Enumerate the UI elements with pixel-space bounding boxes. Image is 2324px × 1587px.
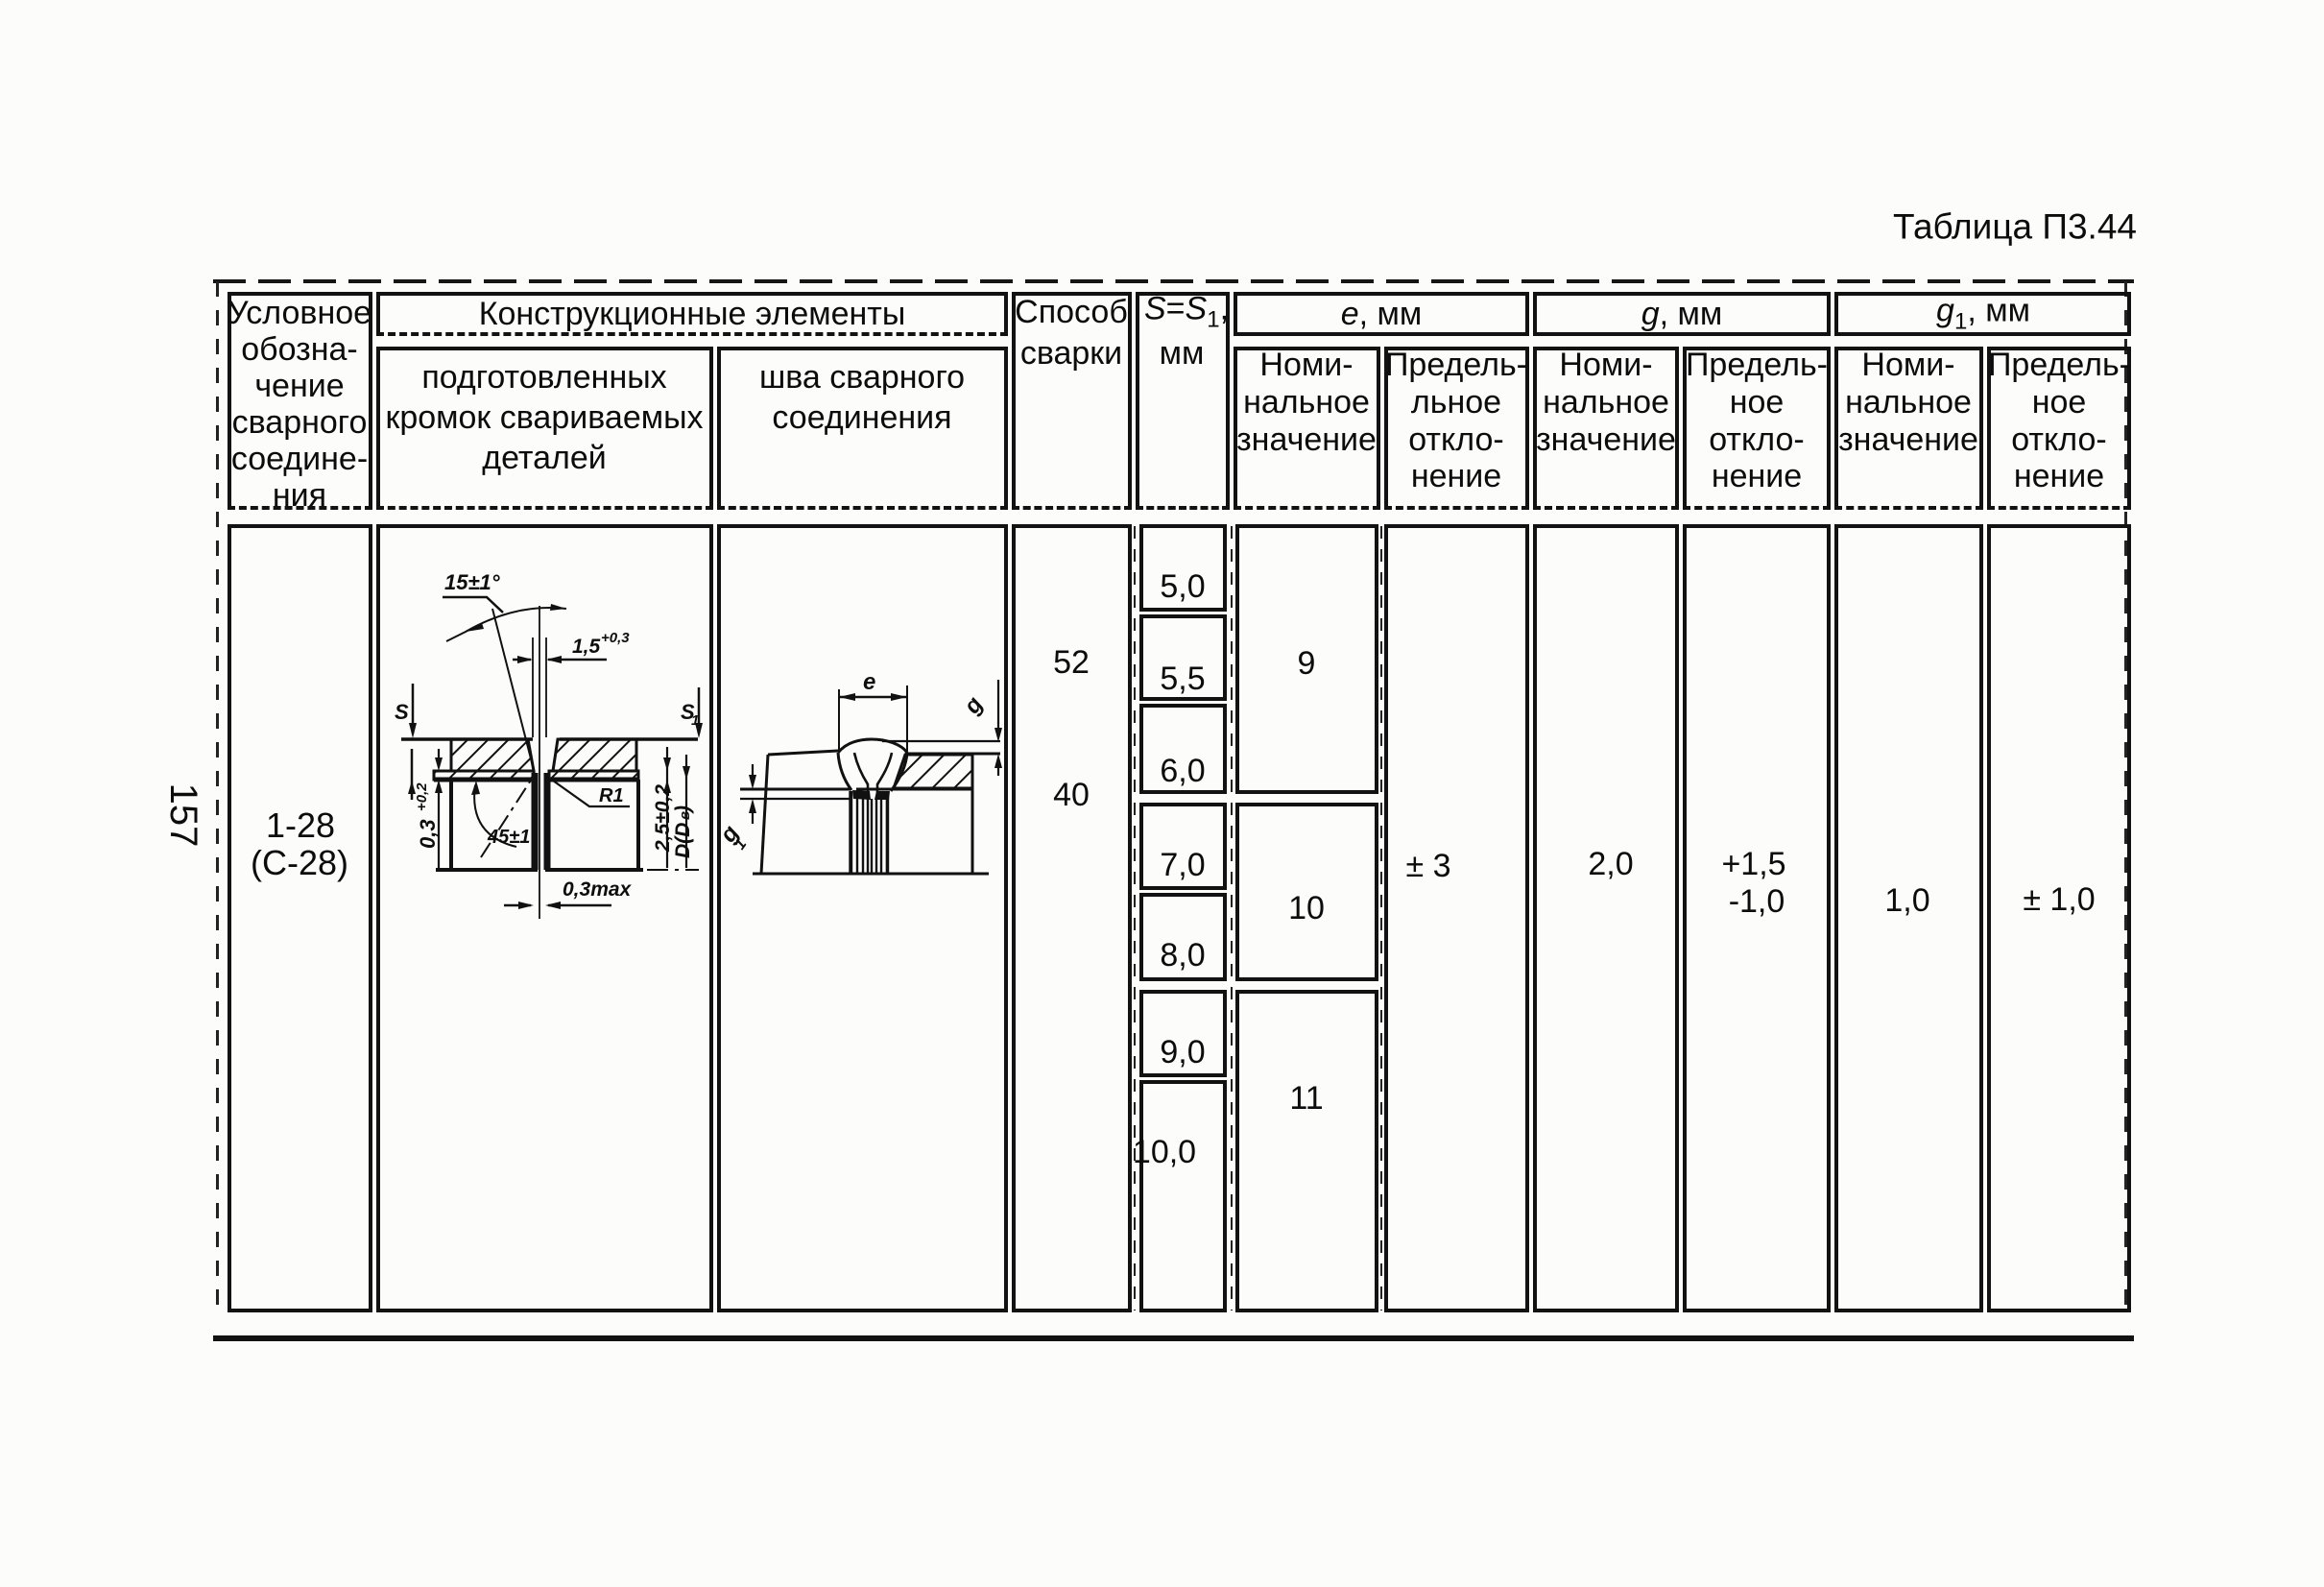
svg-text:g: g xyxy=(958,692,988,720)
svg-text:R1: R1 xyxy=(599,785,624,806)
svg-text:1,5: 1,5 xyxy=(572,636,601,658)
svg-text:S: S xyxy=(395,700,409,724)
svg-text:+0,2: +0,2 xyxy=(414,782,430,811)
svg-text:+0,3: +0,3 xyxy=(601,630,630,646)
svg-text:45±1: 45±1 xyxy=(487,827,530,848)
svg-text:0,3: 0,3 xyxy=(416,819,440,849)
svg-text:e: e xyxy=(863,669,875,695)
svg-text:2,5±0,2: 2,5±0,2 xyxy=(652,784,674,853)
svg-text:D(D: D(D xyxy=(672,823,694,858)
svg-text:0,3max: 0,3max xyxy=(563,878,633,901)
svg-text:15±1°: 15±1° xyxy=(444,570,500,594)
svg-text:): ) xyxy=(672,806,694,814)
svg-text:1: 1 xyxy=(691,712,699,729)
